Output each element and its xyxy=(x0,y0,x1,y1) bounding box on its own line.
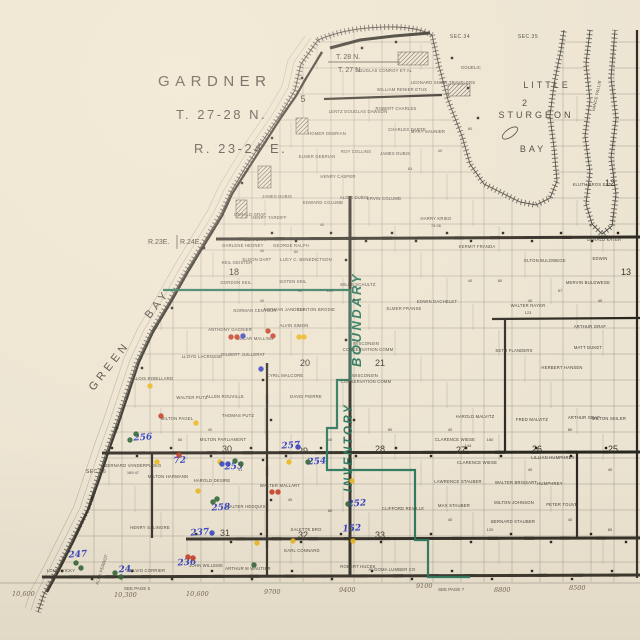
plat-map: GARDNER T. 27-28 N. R. 23-24 E. GREEN BA… xyxy=(0,0,640,640)
paper-vignette-shade xyxy=(0,0,640,640)
